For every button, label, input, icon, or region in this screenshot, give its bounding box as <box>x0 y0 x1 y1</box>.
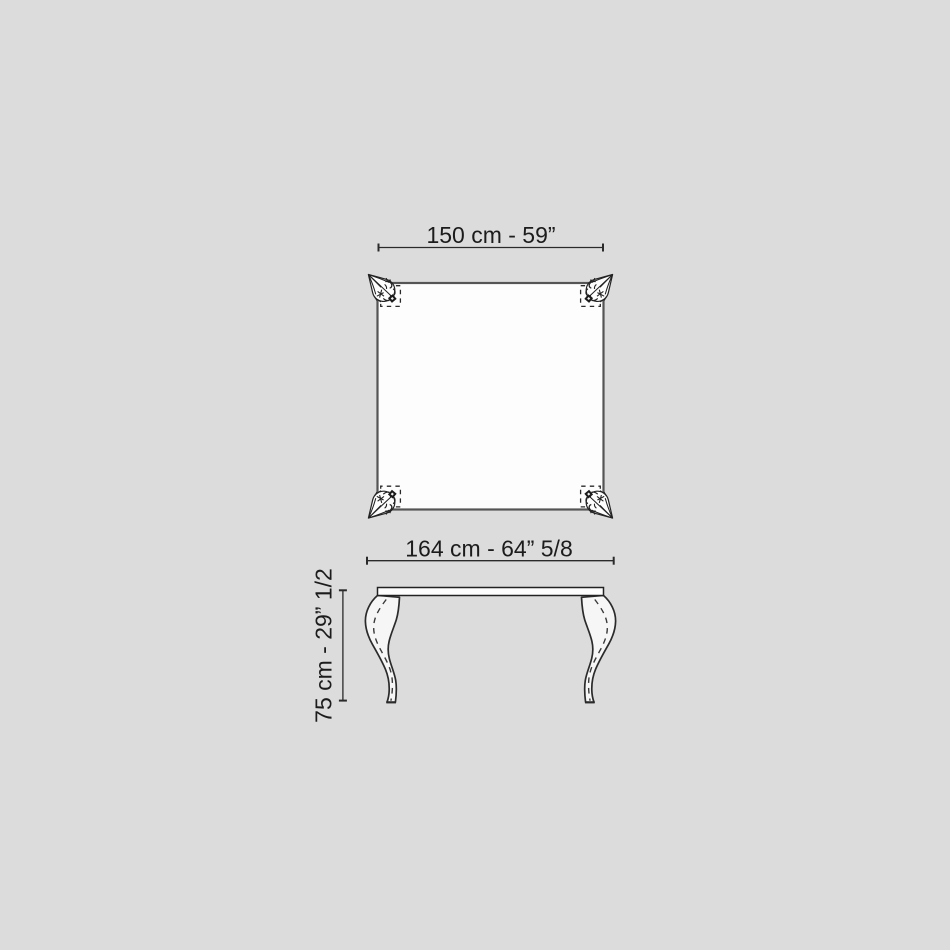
svg-text:150 cm - 59”: 150 cm - 59” <box>426 222 555 248</box>
svg-text:75 cm - 29” 1/2: 75 cm - 29” 1/2 <box>311 568 337 723</box>
svg-text:164 cm - 64” 5/8: 164 cm - 64” 5/8 <box>405 536 572 562</box>
